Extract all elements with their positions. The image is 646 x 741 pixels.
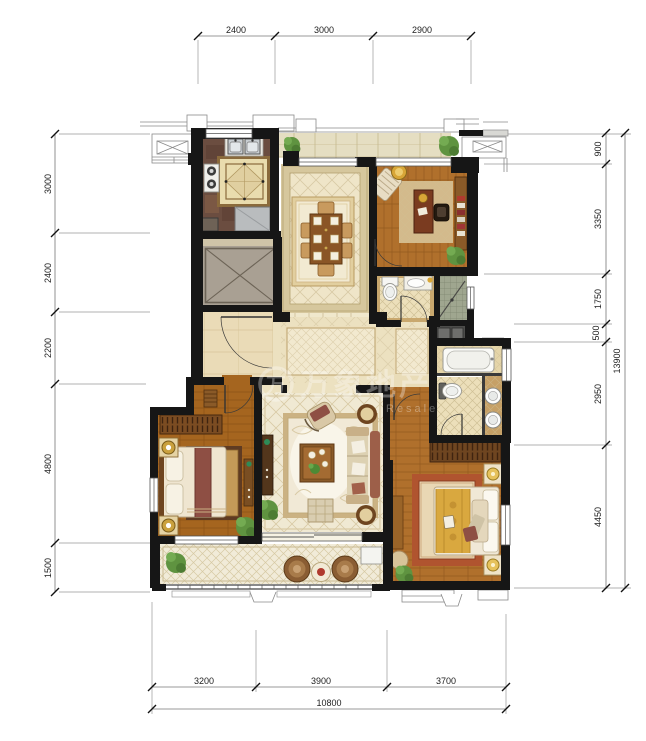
svg-text:13900: 13900 — [612, 348, 622, 373]
svg-text:3350: 3350 — [593, 209, 603, 229]
svg-text:3000: 3000 — [43, 174, 53, 194]
svg-text:万: 万 — [265, 375, 286, 397]
svg-text:3000: 3000 — [314, 25, 334, 35]
svg-text:900: 900 — [593, 141, 603, 156]
svg-text:2950: 2950 — [593, 384, 603, 404]
svg-text:2400: 2400 — [43, 263, 53, 283]
svg-text:500: 500 — [591, 325, 601, 340]
svg-text:Resale: Resale — [386, 403, 438, 415]
svg-text:2200: 2200 — [43, 338, 53, 358]
svg-text:4800: 4800 — [43, 454, 53, 474]
svg-text:万象地产: 万象地产 — [300, 369, 432, 402]
svg-text:2400: 2400 — [226, 25, 246, 35]
svg-text:1500: 1500 — [43, 558, 53, 578]
svg-text:1750: 1750 — [593, 289, 603, 309]
svg-text:4450: 4450 — [593, 507, 603, 527]
svg-text:10800: 10800 — [316, 698, 341, 708]
svg-text:3700: 3700 — [436, 676, 456, 686]
svg-text:3900: 3900 — [311, 676, 331, 686]
svg-text:2900: 2900 — [412, 25, 432, 35]
svg-text:3200: 3200 — [194, 676, 214, 686]
